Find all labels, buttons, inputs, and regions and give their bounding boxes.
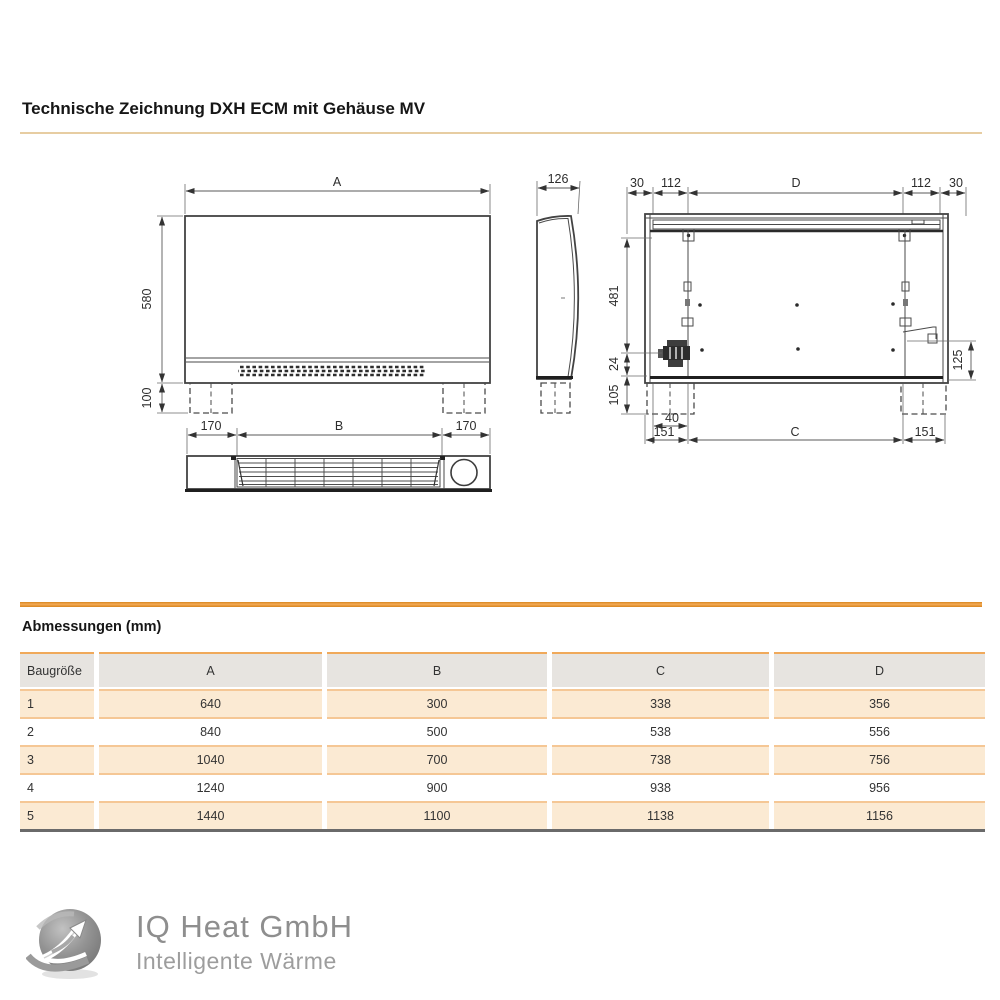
dim-label-rear-top-1: 112: [661, 176, 681, 190]
table-cell: 840: [99, 717, 322, 745]
table-cell: 3: [20, 745, 94, 773]
dim-label-rear-top-2: D: [791, 176, 800, 190]
table-cell: 300: [327, 689, 547, 717]
company-logo: IQ Heat GmbH Intelligente Wärme: [26, 898, 353, 986]
section-divider-bar: [20, 602, 982, 607]
page-title: Technische Zeichnung DXH ECM mit Gehäuse…: [22, 99, 425, 119]
dim-label-rear-top-4: 30: [949, 176, 963, 190]
datasheet-page: Technische Zeichnung DXH ECM mit Gehäuse…: [0, 0, 1000, 1000]
table-cell: 1240: [99, 773, 322, 801]
table-cell: 556: [774, 717, 985, 745]
technical-drawing: A 580: [0, 158, 1000, 528]
dim-label-rear-left-2: 105: [607, 385, 621, 406]
table-cell: 500: [327, 717, 547, 745]
title-divider: [20, 132, 982, 134]
dim-label-rear-bottom-0: 151: [654, 425, 675, 439]
table-cell: 1040: [99, 745, 322, 773]
column-header-c: C: [552, 652, 769, 689]
table-cell: 1156: [774, 801, 985, 829]
table-cell: 700: [327, 745, 547, 773]
company-name: IQ Heat GmbH: [136, 909, 353, 945]
fan-opening: [451, 460, 477, 486]
side-profile: [536, 216, 578, 379]
dim-label-front-height: 580: [140, 289, 154, 310]
table-cell: 356: [774, 689, 985, 717]
table-cell: 640: [99, 689, 322, 717]
dim-label-bottom-right: 170: [456, 419, 477, 433]
column-header-a: A: [99, 652, 322, 689]
dim-label-front-feet: 100: [140, 388, 154, 409]
table-cell: 956: [774, 773, 985, 801]
table-cell: 4: [20, 773, 94, 801]
side-foot: [541, 383, 570, 413]
rear-view: 30 112 D 112 30: [607, 176, 976, 444]
table-cell: 2: [20, 717, 94, 745]
dim-label-rear-top-3: 112: [911, 176, 931, 190]
dimensions-table: Baugröße A B C D 1 640 300 338 356 2 840…: [20, 652, 985, 832]
dim-label-front-width: A: [333, 175, 342, 189]
table-cell: 538: [552, 717, 769, 745]
rear-feet: [647, 383, 946, 414]
table-cell: 1440: [99, 801, 322, 829]
table-cell: 338: [552, 689, 769, 717]
column-header-d: D: [774, 652, 985, 689]
table-cell: 5: [20, 801, 94, 829]
front-view: A 580: [140, 175, 490, 413]
rear-panel: [645, 214, 948, 383]
bottom-view: 170 B 170: [185, 419, 492, 491]
dim-label-rear-bottom-1: C: [790, 425, 799, 439]
table-cell: 756: [774, 745, 985, 773]
column-header-baugroesse: Baugröße: [20, 652, 94, 689]
table-cell: 1100: [327, 801, 547, 829]
dim-label-rear-right: 125: [951, 350, 965, 371]
side-view: 126: [536, 172, 580, 413]
table-cell: 1138: [552, 801, 769, 829]
table-cell: 1: [20, 689, 94, 717]
dim-label-rear-cable: 40: [665, 411, 679, 425]
dim-label-bottom-left: 170: [201, 419, 222, 433]
globe-arrows-icon: [26, 898, 110, 986]
dim-label-rear-top-0: 30: [630, 176, 644, 190]
dim-label-rear-left-1: 24: [607, 357, 621, 371]
company-tagline: Intelligente Wärme: [136, 948, 353, 975]
table-cell: 738: [552, 745, 769, 773]
dim-label-bottom-grille: B: [335, 419, 343, 433]
dim-label-rear-bottom-2: 151: [915, 425, 936, 439]
table-cell: 938: [552, 773, 769, 801]
dim-label-rear-left-0: 481: [607, 286, 621, 307]
dim-label-side-depth: 126: [548, 172, 569, 186]
table-cell: 900: [327, 773, 547, 801]
column-header-b: B: [327, 652, 547, 689]
front-feet: [190, 383, 485, 413]
table-heading: Abmessungen (mm): [22, 619, 161, 635]
